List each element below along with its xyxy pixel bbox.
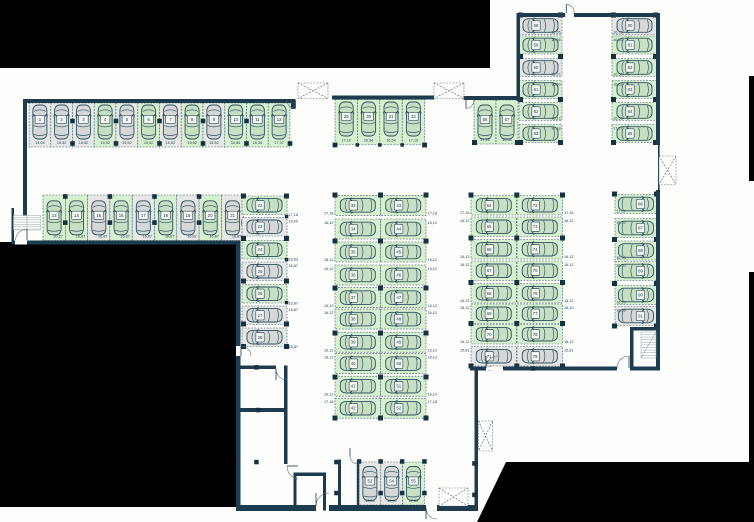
svg-text:16,00: 16,00	[365, 499, 375, 503]
svg-text:17,18: 17,18	[564, 211, 574, 215]
svg-text:10: 10	[233, 117, 238, 122]
svg-text:29: 29	[344, 114, 349, 119]
svg-text:45: 45	[396, 250, 401, 255]
svg-text:81: 81	[628, 43, 633, 48]
svg-text:36: 36	[351, 273, 356, 278]
svg-text:69: 69	[487, 311, 492, 316]
svg-text:37: 37	[351, 295, 356, 300]
svg-text:16,53: 16,53	[613, 82, 623, 86]
svg-text:16,12: 16,12	[428, 267, 438, 271]
svg-text:78: 78	[533, 332, 538, 337]
svg-text:30: 30	[366, 114, 371, 119]
svg-text:16,12: 16,12	[324, 311, 334, 315]
svg-text:73: 73	[533, 224, 538, 229]
svg-text:16,16: 16,16	[616, 308, 626, 312]
svg-text:16,12: 16,12	[564, 340, 574, 344]
svg-text:16,53: 16,53	[616, 263, 626, 267]
svg-text:16,12: 16,12	[460, 306, 470, 310]
svg-text:20: 20	[208, 213, 213, 218]
svg-text:16,12: 16,12	[564, 299, 574, 303]
svg-text:50: 50	[396, 361, 401, 366]
svg-text:16,75: 16,75	[613, 31, 623, 35]
svg-text:15,52: 15,52	[209, 141, 219, 145]
svg-text:15,52: 15,52	[100, 141, 110, 145]
svg-text:16,87: 16,87	[289, 264, 299, 268]
svg-text:16,12: 16,12	[460, 255, 470, 259]
svg-text:41: 41	[351, 384, 356, 389]
svg-text:16,87: 16,87	[289, 345, 299, 349]
svg-text:40: 40	[351, 361, 356, 366]
svg-text:16,87: 16,87	[165, 234, 175, 238]
svg-text:16,53: 16,53	[613, 117, 623, 121]
svg-text:15,52: 15,52	[57, 141, 67, 145]
svg-text:15,52: 15,52	[122, 141, 132, 145]
svg-text:91: 91	[638, 314, 643, 319]
svg-text:15: 15	[96, 213, 101, 218]
svg-text:17: 17	[141, 213, 146, 218]
svg-text:18: 18	[163, 213, 168, 218]
svg-text:35: 35	[351, 250, 356, 255]
svg-text:16,20: 16,20	[616, 301, 626, 305]
svg-text:16,12: 16,12	[428, 311, 438, 315]
svg-text:53: 53	[368, 479, 373, 484]
svg-text:16,53: 16,53	[613, 38, 623, 42]
svg-text:16,87: 16,87	[289, 308, 299, 312]
svg-text:16,87: 16,87	[187, 234, 197, 238]
svg-text:17,18: 17,18	[428, 212, 438, 216]
svg-text:15,52: 15,52	[144, 141, 154, 145]
svg-text:47: 47	[396, 295, 401, 300]
svg-text:27: 27	[258, 313, 263, 318]
svg-text:75: 75	[533, 268, 538, 273]
svg-text:13: 13	[52, 213, 57, 218]
svg-text:52: 52	[396, 406, 401, 411]
svg-text:25: 25	[258, 269, 263, 274]
svg-text:16: 16	[119, 213, 124, 218]
svg-text:16,27: 16,27	[551, 73, 561, 77]
svg-text:16,12: 16,12	[324, 267, 334, 271]
svg-text:43: 43	[396, 203, 401, 208]
svg-text:16,86: 16,86	[231, 141, 241, 145]
svg-text:89: 89	[638, 269, 643, 274]
svg-text:59: 59	[534, 43, 539, 48]
svg-text:16,53: 16,53	[616, 220, 626, 224]
svg-text:16,12: 16,12	[460, 299, 470, 303]
svg-text:16,87: 16,87	[232, 234, 242, 238]
svg-text:15,81: 15,81	[460, 348, 470, 352]
svg-text:17,18: 17,18	[460, 211, 470, 215]
svg-text:16,12: 16,12	[428, 304, 438, 308]
svg-text:16,12: 16,12	[324, 348, 334, 352]
svg-text:16,12: 16,12	[324, 392, 334, 396]
svg-text:57: 57	[505, 117, 510, 122]
svg-text:23: 23	[258, 224, 263, 229]
svg-text:33: 33	[351, 203, 356, 208]
svg-text:85: 85	[628, 131, 633, 136]
svg-text:17,27: 17,27	[613, 126, 623, 130]
svg-text:16,00: 16,00	[289, 219, 299, 223]
svg-text:16,12: 16,12	[324, 355, 334, 359]
svg-text:74: 74	[533, 247, 538, 252]
svg-text:39: 39	[351, 340, 356, 345]
svg-text:24: 24	[258, 247, 263, 252]
svg-text:16,53: 16,53	[551, 82, 561, 86]
svg-text:16,12: 16,12	[551, 117, 561, 121]
svg-text:17,27: 17,27	[616, 210, 626, 214]
svg-text:14,04: 14,04	[35, 141, 45, 145]
svg-text:16,87: 16,87	[289, 302, 299, 306]
svg-text:31: 31	[389, 114, 394, 119]
svg-text:80: 80	[628, 23, 633, 28]
svg-text:16,87: 16,87	[143, 234, 153, 238]
svg-text:60: 60	[534, 65, 539, 70]
svg-text:21: 21	[230, 213, 235, 218]
svg-text:17,16: 17,16	[409, 138, 419, 142]
svg-text:16,87: 16,87	[209, 234, 219, 238]
svg-text:76: 76	[533, 291, 538, 296]
svg-text:70: 70	[487, 332, 492, 337]
svg-text:67: 67	[487, 268, 492, 273]
svg-text:68: 68	[487, 291, 492, 296]
svg-text:16,65: 16,65	[551, 31, 561, 35]
svg-text:12: 12	[277, 117, 282, 122]
svg-text:56: 56	[483, 117, 488, 122]
svg-text:20,27: 20,27	[53, 234, 63, 238]
svg-text:16,12: 16,12	[460, 263, 470, 267]
svg-text:16,12: 16,12	[428, 221, 438, 225]
svg-text:15,81: 15,81	[564, 348, 574, 352]
svg-text:16,12: 16,12	[564, 255, 574, 259]
svg-text:87: 87	[638, 226, 643, 231]
svg-text:16,54: 16,54	[502, 138, 512, 142]
svg-text:79: 79	[533, 354, 538, 359]
svg-text:15,52: 15,52	[166, 141, 176, 145]
svg-text:16,12: 16,12	[428, 392, 438, 396]
svg-text:88: 88	[638, 248, 643, 253]
svg-text:49: 49	[396, 340, 401, 345]
svg-text:66: 66	[487, 247, 492, 252]
svg-text:16,66: 16,66	[551, 38, 561, 42]
svg-text:14: 14	[74, 213, 79, 218]
svg-text:17,00: 17,00	[409, 499, 419, 503]
svg-text:16,12: 16,12	[460, 219, 470, 223]
svg-text:16,87: 16,87	[98, 234, 108, 238]
svg-text:16,12: 16,12	[324, 304, 334, 308]
svg-text:38: 38	[351, 317, 356, 322]
svg-text:16,54: 16,54	[364, 138, 374, 142]
svg-text:55: 55	[411, 479, 416, 484]
svg-text:17,18: 17,18	[289, 213, 299, 217]
svg-text:72: 72	[533, 203, 538, 208]
svg-text:83: 83	[628, 87, 633, 92]
svg-text:16,35: 16,35	[253, 141, 263, 145]
svg-text:51: 51	[396, 384, 401, 389]
svg-text:42: 42	[351, 406, 356, 411]
svg-text:16,12: 16,12	[324, 221, 334, 225]
svg-text:16,63: 16,63	[289, 258, 299, 262]
svg-text:16,12: 16,12	[564, 263, 574, 267]
svg-text:58: 58	[534, 23, 539, 28]
svg-text:64: 64	[487, 203, 492, 208]
svg-text:48: 48	[396, 317, 401, 322]
svg-text:15,52: 15,52	[79, 141, 89, 145]
svg-text:16,12: 16,12	[564, 306, 574, 310]
svg-text:16,12: 16,12	[460, 340, 470, 344]
svg-text:32: 32	[411, 114, 416, 119]
svg-text:46: 46	[396, 273, 401, 278]
svg-text:17,37: 17,37	[274, 141, 284, 145]
svg-text:16,87: 16,87	[120, 234, 130, 238]
svg-text:44: 44	[396, 227, 401, 232]
svg-text:28: 28	[258, 335, 263, 340]
svg-text:16,53: 16,53	[613, 73, 623, 77]
svg-text:16,87: 16,87	[76, 234, 86, 238]
svg-text:82: 82	[628, 65, 633, 70]
svg-text:16,53: 16,53	[616, 256, 626, 260]
svg-text:65: 65	[487, 224, 492, 229]
svg-text:77: 77	[533, 311, 538, 316]
svg-text:17,18: 17,18	[324, 400, 334, 404]
svg-text:16,12: 16,12	[428, 355, 438, 359]
svg-text:22: 22	[258, 203, 263, 208]
svg-text:16,12: 16,12	[564, 219, 574, 223]
svg-text:19: 19	[186, 213, 191, 218]
svg-text:16,00: 16,00	[387, 499, 397, 503]
svg-text:16,12: 16,12	[428, 348, 438, 352]
svg-text:63: 63	[534, 131, 539, 136]
svg-text:62: 62	[534, 109, 539, 114]
svg-text:86: 86	[638, 202, 643, 207]
svg-text:16,12: 16,12	[428, 258, 438, 262]
svg-text:26: 26	[258, 291, 263, 296]
svg-text:16,54: 16,54	[386, 138, 396, 142]
svg-text:15,52: 15,52	[187, 141, 197, 145]
svg-text:34: 34	[351, 227, 356, 232]
svg-text:17,18: 17,18	[324, 212, 334, 216]
svg-text:84: 84	[628, 109, 633, 114]
svg-text:16,12: 16,12	[324, 258, 334, 262]
svg-text:17,16: 17,16	[341, 138, 351, 142]
svg-text:61: 61	[534, 87, 539, 92]
svg-text:54: 54	[389, 479, 394, 484]
svg-text:11: 11	[255, 117, 260, 122]
svg-text:17,18: 17,18	[428, 400, 438, 404]
svg-text:17,16: 17,16	[480, 138, 490, 142]
svg-text:90: 90	[638, 293, 643, 298]
svg-text:17,18: 17,18	[551, 126, 561, 130]
